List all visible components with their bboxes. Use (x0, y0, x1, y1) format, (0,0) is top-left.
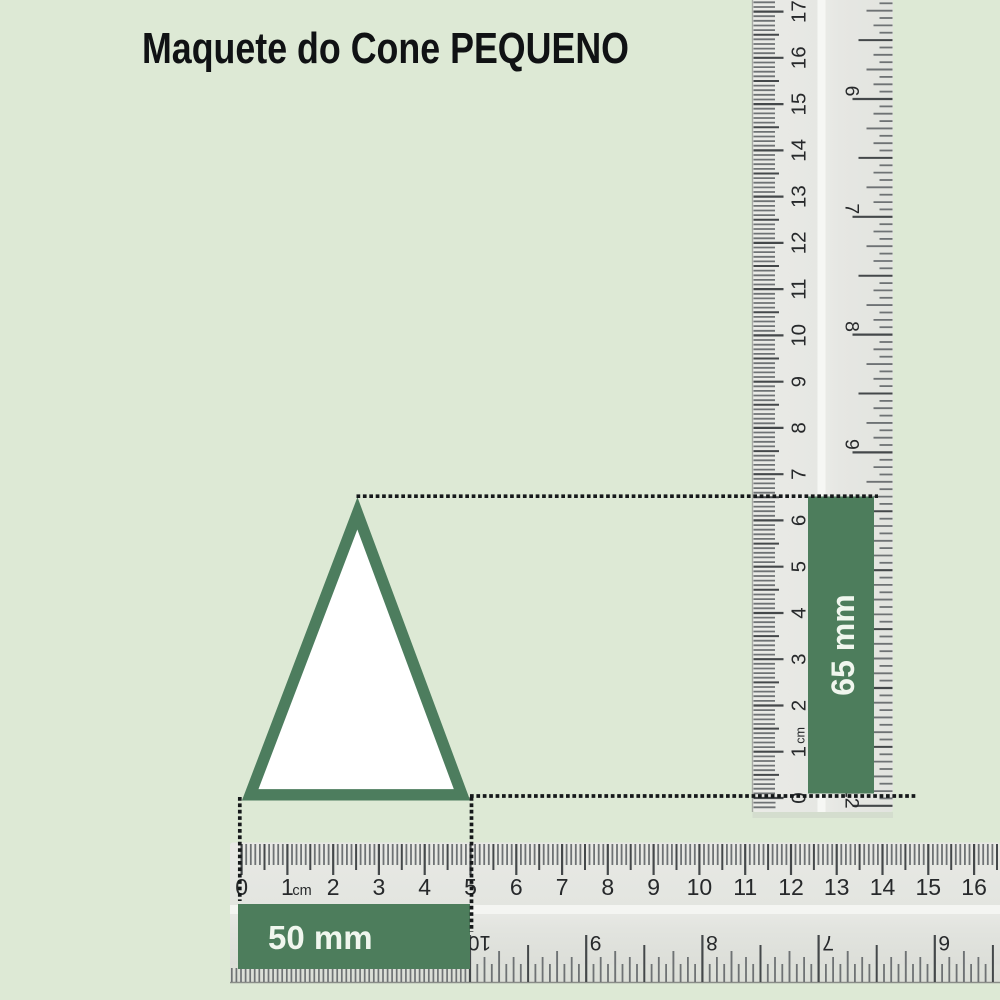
svg-text:50 mm: 50 mm (268, 919, 373, 956)
svg-text:2: 2 (787, 700, 810, 711)
svg-text:12: 12 (778, 874, 804, 900)
svg-text:16: 16 (787, 46, 810, 69)
svg-text:10: 10 (787, 324, 810, 347)
svg-text:11: 11 (733, 874, 757, 900)
svg-text:7: 7 (787, 468, 810, 479)
svg-text:10: 10 (687, 874, 713, 900)
svg-text:15: 15 (787, 93, 810, 116)
svg-text:9: 9 (841, 439, 863, 450)
svg-text:6: 6 (841, 86, 863, 97)
svg-text:4: 4 (787, 607, 810, 618)
svg-text:13: 13 (787, 185, 810, 208)
svg-text:17: 17 (787, 0, 810, 23)
svg-text:8: 8 (706, 931, 718, 954)
svg-text:8: 8 (787, 422, 810, 433)
svg-text:6: 6 (787, 515, 810, 526)
svg-text:9: 9 (590, 931, 602, 954)
svg-text:4: 4 (418, 874, 431, 900)
svg-text:13: 13 (824, 874, 850, 900)
svg-text:cm: cm (794, 727, 808, 744)
svg-text:6: 6 (510, 874, 523, 900)
svg-text:9: 9 (787, 376, 810, 387)
svg-text:14: 14 (870, 874, 896, 900)
svg-text:10: 10 (468, 931, 491, 954)
svg-text:0: 0 (787, 792, 810, 803)
svg-text:5: 5 (787, 561, 810, 572)
svg-text:7: 7 (841, 203, 863, 214)
svg-text:Maquete do Cone PEQUENO: Maquete do Cone PEQUENO (142, 25, 629, 73)
svg-text:15: 15 (916, 874, 942, 900)
svg-text:16: 16 (961, 874, 987, 900)
svg-text:8: 8 (601, 874, 614, 900)
svg-text:3: 3 (787, 653, 810, 664)
svg-text:8: 8 (841, 321, 863, 332)
svg-text:3: 3 (373, 874, 386, 900)
svg-text:1: 1 (787, 746, 810, 757)
svg-text:7: 7 (556, 874, 569, 900)
svg-text:12: 12 (787, 231, 810, 254)
svg-text:cm: cm (292, 883, 311, 899)
svg-text:65 mm: 65 mm (825, 594, 861, 695)
svg-text:14: 14 (787, 139, 810, 162)
svg-text:2: 2 (327, 874, 340, 900)
svg-text:7: 7 (822, 931, 834, 954)
svg-text:6: 6 (938, 931, 950, 954)
svg-text:11: 11 (787, 278, 810, 299)
svg-text:9: 9 (647, 874, 660, 900)
